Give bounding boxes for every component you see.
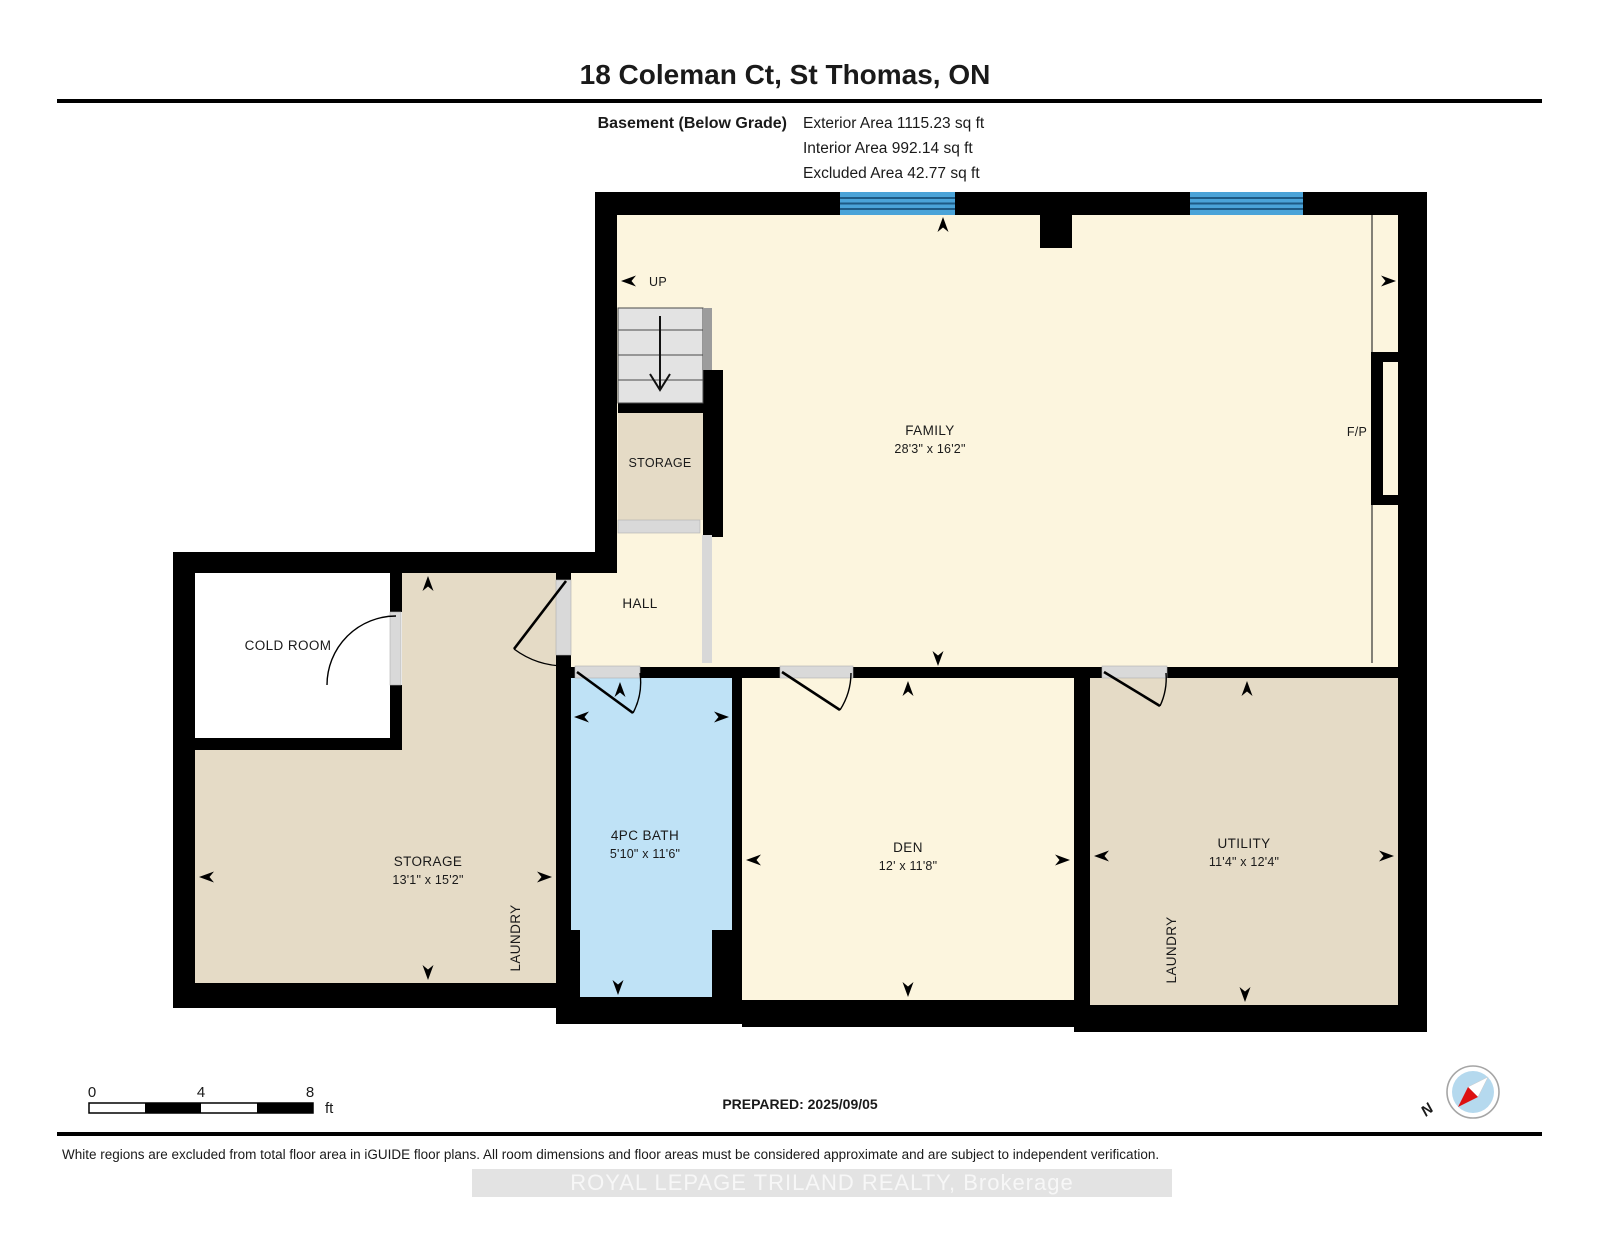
title-divider [57,99,1542,103]
prepared-date: PREPARED: 2025/09/05 [722,1096,878,1112]
family-room-floor [617,215,1398,667]
compass-north-label: N [1418,1099,1438,1120]
family-room-dims: 28'3" x 16'2" [894,442,965,456]
excluded-area: Excluded Area 42.77 sq ft [803,165,980,182]
interior-area: Interior Area 992.14 sq ft [803,140,973,157]
scale-bar: 0 4 8 ft [88,1084,334,1117]
utility-dims: 11'4" x 12'4" [1209,855,1279,869]
storage-room-label: STORAGE [394,854,463,869]
brokerage-watermark: ROYAL LEPAGE TRILAND REALTY, Brokerage [570,1170,1073,1195]
bath-label: 4PC BATH [611,828,679,843]
compass-icon: N [1418,1066,1499,1120]
floor-label: Basement (Below Grade) [598,115,787,132]
hall-floor [571,573,702,667]
page-title: 18 Coleman Ct, St Thomas, ON [580,59,991,90]
scale-unit-label: ft [325,1100,334,1117]
hall-upper-floor [617,533,703,573]
scale-tick-4: 4 [197,1084,205,1101]
bath-dims: 5'10" x 11'6" [610,847,680,861]
floor-plan-canvas: 18 Coleman Ct, St Thomas, ON Basement (B… [0,0,1600,1237]
small-storage-label: STORAGE [629,456,692,470]
fireplace-niche [1383,362,1398,495]
cold-room-floor [195,573,390,738]
exterior-area: Exterior Area 1115.23 sq ft [803,115,985,132]
scale-tick-8: 8 [306,1084,314,1101]
utility-label: UTILITY [1217,836,1270,851]
footer-divider [57,1132,1542,1136]
window-icon [840,192,955,215]
staircase-icon [618,308,712,403]
laundry-right-label: LAUNDRY [1164,916,1179,983]
stairs-up-label: UP [649,275,667,289]
fireplace-label: F/P [1347,425,1367,439]
disclaimer-text: White regions are excluded from total fl… [62,1147,1159,1162]
scale-tick-0: 0 [88,1084,96,1101]
window-icon [1190,192,1303,215]
family-room-label: FAMILY [905,423,954,438]
laundry-left-label: LAUNDRY [508,904,523,971]
den-dims: 12' x 11'8" [879,859,937,873]
cold-room-label: COLD ROOM [245,638,332,653]
floor-plan-page: 18 Coleman Ct, St Thomas, ON Basement (B… [0,0,1600,1237]
den-label: DEN [893,840,923,855]
storage-room-dims: 13'1" x 15'2" [392,873,463,887]
den-floor [742,678,1074,1000]
room-floors [195,215,1398,1005]
hall-label: HALL [622,596,657,611]
